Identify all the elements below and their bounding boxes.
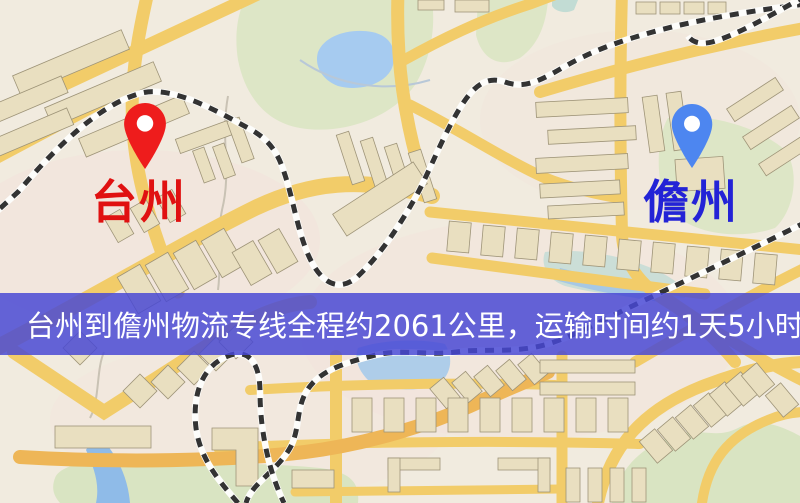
route-info-banner: 台州到儋州物流专线全程约2061公里，运输时间约1天5小时. — [0, 293, 800, 355]
origin-pin-icon[interactable] — [123, 103, 167, 169]
origin-city-label: 台州 — [91, 179, 187, 225]
logistics-route-map: 台州 儋州 台州到儋州物流专线全程约2061公里，运输时间约1天5小时. — [0, 0, 800, 503]
map-canvas — [0, 0, 800, 503]
route-info-text: 台州到儋州物流专线全程约2061公里，运输时间约1天5小时. — [26, 303, 800, 345]
destination-pin-icon[interactable] — [669, 104, 715, 168]
destination-city-label: 儋州 — [643, 179, 739, 225]
